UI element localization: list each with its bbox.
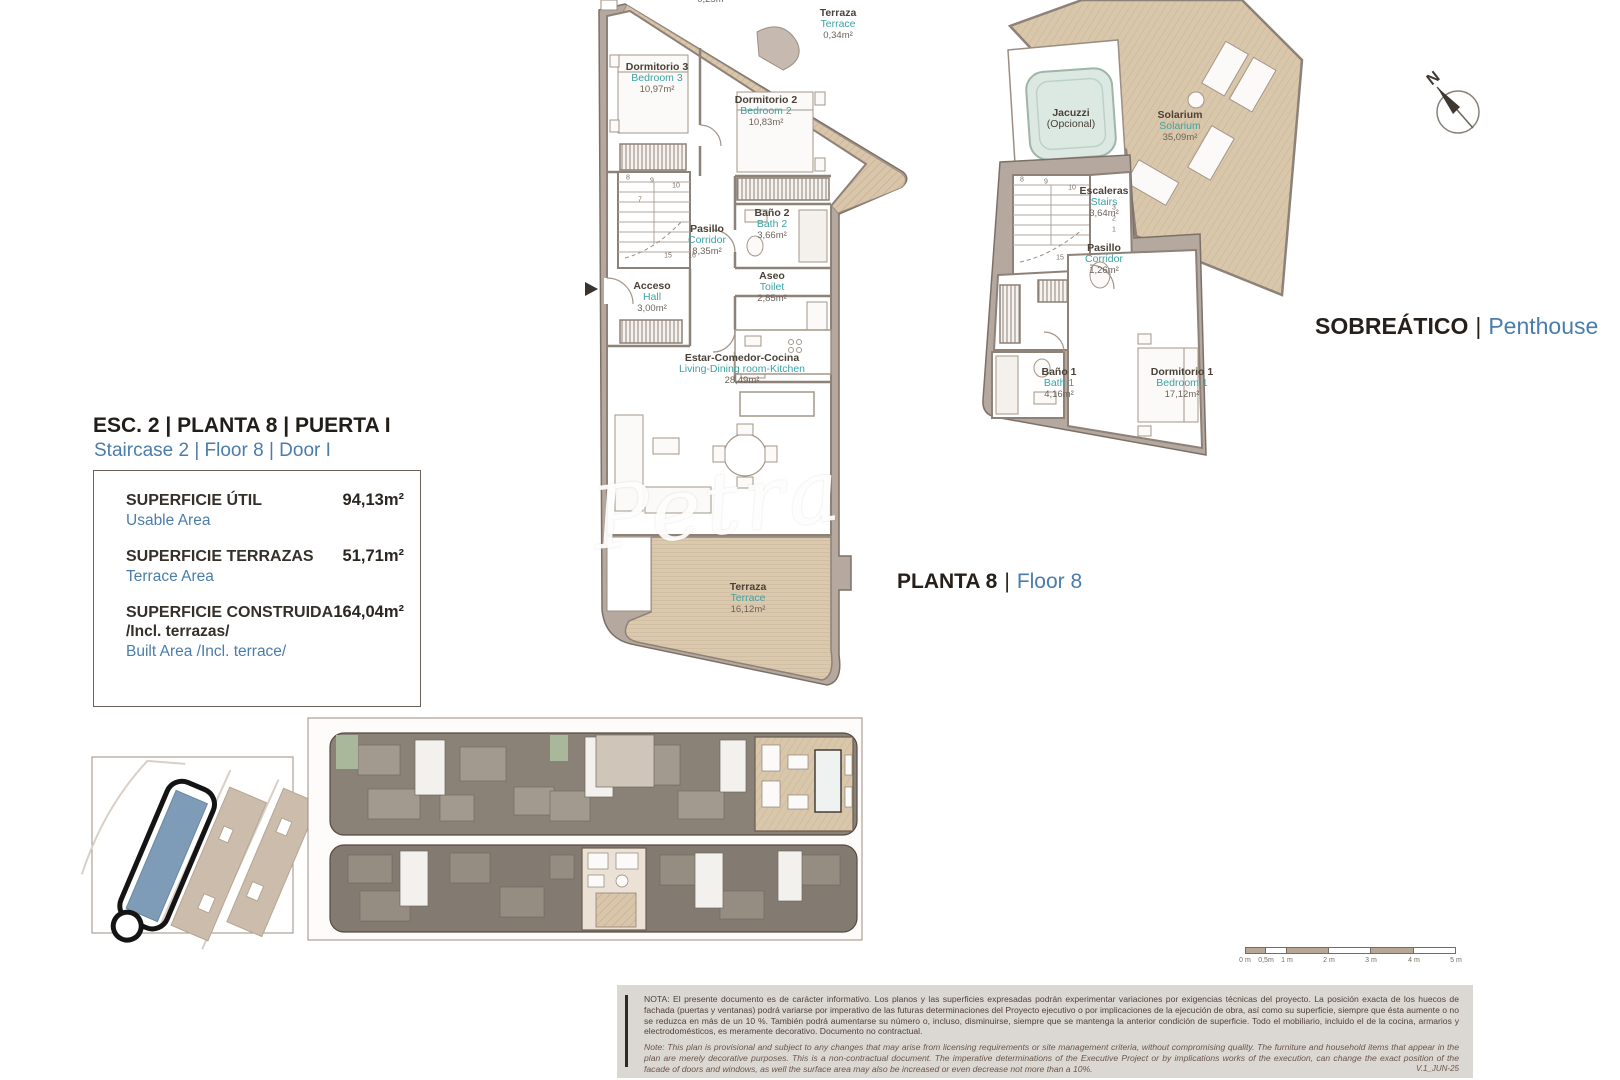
stair-number: 8: [626, 175, 630, 182]
stair-number: 15: [664, 253, 672, 260]
stair-number: 9: [1044, 179, 1048, 186]
area-value: 94,13m²: [343, 491, 404, 510]
scale-label: 1 m: [1281, 957, 1293, 964]
plan-sheet: Petra TerrazaTerrace0,25m² TerrazaTerrac…: [0, 0, 1620, 1080]
stair-number: 3: [1112, 205, 1116, 212]
scale-segment: [1245, 947, 1266, 954]
area-value: 51,71m²: [343, 547, 404, 566]
scale-segment: [1286, 947, 1329, 954]
stair-number: 2: [1112, 216, 1116, 223]
stair-number: 15: [1056, 255, 1064, 262]
room-label-pasillo-ph: PasilloCorridor1,26m²: [1085, 243, 1123, 276]
room-label-terraza-top: TerrazaTerrace0,25m²: [694, 0, 731, 5]
floor8-caption: PLANTA 8|Floor 8: [897, 570, 1082, 594]
stair-number: 1: [1112, 227, 1116, 234]
stair-number: 10: [1068, 185, 1076, 192]
scale-segment: [1265, 947, 1287, 954]
unit-subtitle: Staircase 2 | Floor 8 | Door I: [94, 440, 331, 462]
room-label-solarium: SolariumSolarium35,09m²: [1158, 110, 1203, 143]
room-label-aseo: AseoToilet2,85m²: [757, 271, 787, 304]
room-label-escaleras: EscalerasStairs3,64m²: [1079, 186, 1128, 219]
building-overview-strips: [300, 695, 870, 945]
version-label: V.1_JUN-25: [1416, 1064, 1459, 1073]
stair-number: 7: [638, 197, 642, 204]
area-label-2: /Incl. terrazas/: [126, 622, 404, 641]
room-label-terraza-034: TerrazaTerrace0,34m²: [820, 8, 857, 41]
scale-label: 0 m: [1239, 957, 1251, 964]
stair-number: 10: [672, 183, 680, 190]
disclaimer-box: NOTA: El presente documento es de caráct…: [617, 985, 1473, 1078]
scale-segment: [1370, 947, 1414, 954]
scale-label: 4 m: [1408, 957, 1420, 964]
scale-label: 5 m: [1450, 957, 1462, 964]
room-label-terraza-main: TerrazaTerrace16,12m²: [730, 582, 767, 615]
scale-label: 3 m: [1365, 957, 1377, 964]
area-row-terrace: SUPERFICIE TERRAZAS 51,71m² Terrace Area: [126, 547, 404, 587]
scale-label: 0,5m: [1258, 957, 1274, 964]
unit-title: ESC. 2 | PLANTA 8 | PUERTA I: [93, 414, 391, 438]
area-table: SUPERFICIE ÚTIL 94,13m² Usable Area SUPE…: [93, 470, 421, 707]
room-label-acceso: AccesoHall3,00m²: [633, 281, 670, 314]
stair-number: 8: [1020, 177, 1024, 184]
scale-segment: [1328, 947, 1371, 954]
stair-number: 16: [688, 253, 696, 260]
area-label-en: Built Area /Incl. terrace/: [126, 641, 404, 662]
area-row-built: SUPERFICIE CONSTRUIDA 164,04m² /Incl. te…: [126, 603, 404, 662]
penthouse-caption: SOBREÁTICO|Penthouse: [1315, 313, 1598, 340]
room-label-living: Estar-Comedor-CocinaLiving-Dining room-K…: [679, 353, 805, 386]
disclaimer-accent-bar: [625, 995, 628, 1067]
room-label-dormitorio2: Dormitorio 2Bedroom 210,83m²: [735, 95, 797, 128]
area-label: SUPERFICIE ÚTIL: [126, 492, 262, 510]
penthouse-plan-drawing: [950, 0, 1320, 475]
area-row-usable: SUPERFICIE ÚTIL 94,13m² Usable Area: [126, 491, 404, 531]
room-label-bano2: Baño 2Bath 23,66m²: [754, 208, 789, 241]
scale-segment: [1413, 947, 1456, 954]
room-label-dormitorio3: Dormitorio 3Bedroom 310,97m²: [626, 62, 688, 95]
area-value: 164,04m²: [333, 603, 404, 622]
room-label-jacuzzi: Jacuzzi(Opcional): [1047, 108, 1095, 130]
stair-number: 9: [650, 178, 654, 185]
disclaimer-text-en: Note: This plan is provisional and subje…: [644, 1042, 1459, 1074]
area-label-en: Usable Area: [126, 510, 404, 531]
scale-label: 2 m: [1323, 957, 1335, 964]
disclaimer-text-es: NOTA: El presente documento es de caráct…: [644, 994, 1459, 1037]
area-label-en: Terrace Area: [126, 566, 404, 587]
room-label-bano1: Baño 1Bath 14,16m²: [1041, 367, 1076, 400]
area-label: SUPERFICIE CONSTRUIDA: [126, 604, 333, 622]
room-label-dormitorio1: Dormitorio 1Bedroom 117,12m²: [1151, 367, 1213, 400]
scale-bar: 0 m 0,5m 1 m 2 m 3 m 4 m 5 m: [1245, 947, 1457, 969]
site-plan: [90, 755, 295, 935]
area-label: SUPERFICIE TERRAZAS: [126, 548, 314, 566]
